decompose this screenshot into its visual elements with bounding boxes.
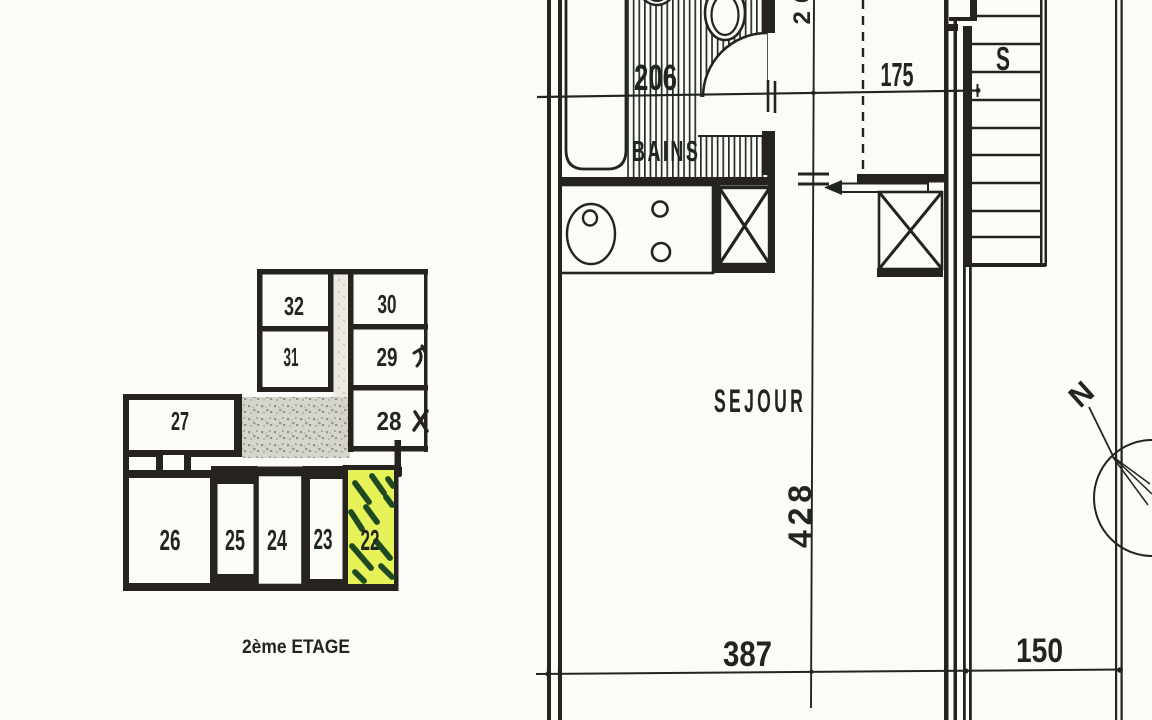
svg-text:6: 6 — [789, 0, 816, 3]
svg-text:28: 28 — [377, 406, 402, 436]
svg-text:30: 30 — [378, 289, 397, 319]
svg-text:428: 428 — [782, 485, 818, 548]
svg-text:SEJOUR: SEJOUR — [714, 385, 806, 420]
svg-text:2: 2 — [789, 11, 816, 24]
svg-text:2ème ETAGE: 2ème ETAGE — [242, 636, 350, 658]
svg-text:S: S — [996, 40, 1010, 77]
svg-text:27: 27 — [171, 406, 189, 436]
svg-text:22: 22 — [361, 525, 380, 557]
svg-text:387: 387 — [723, 635, 772, 674]
svg-text:206: 206 — [634, 57, 677, 98]
svg-text:29: 29 — [377, 342, 398, 372]
svg-text:32: 32 — [284, 291, 304, 321]
svg-text:BAINS: BAINS — [632, 136, 700, 168]
svg-text:24: 24 — [267, 525, 287, 557]
svg-text:N: N — [1063, 375, 1101, 414]
svg-text:175: 175 — [881, 56, 914, 93]
svg-text:26: 26 — [160, 525, 181, 557]
svg-text:23: 23 — [314, 524, 333, 556]
svg-text:150: 150 — [1016, 632, 1063, 670]
svg-text:25: 25 — [225, 525, 245, 557]
svg-text:31: 31 — [284, 342, 299, 372]
